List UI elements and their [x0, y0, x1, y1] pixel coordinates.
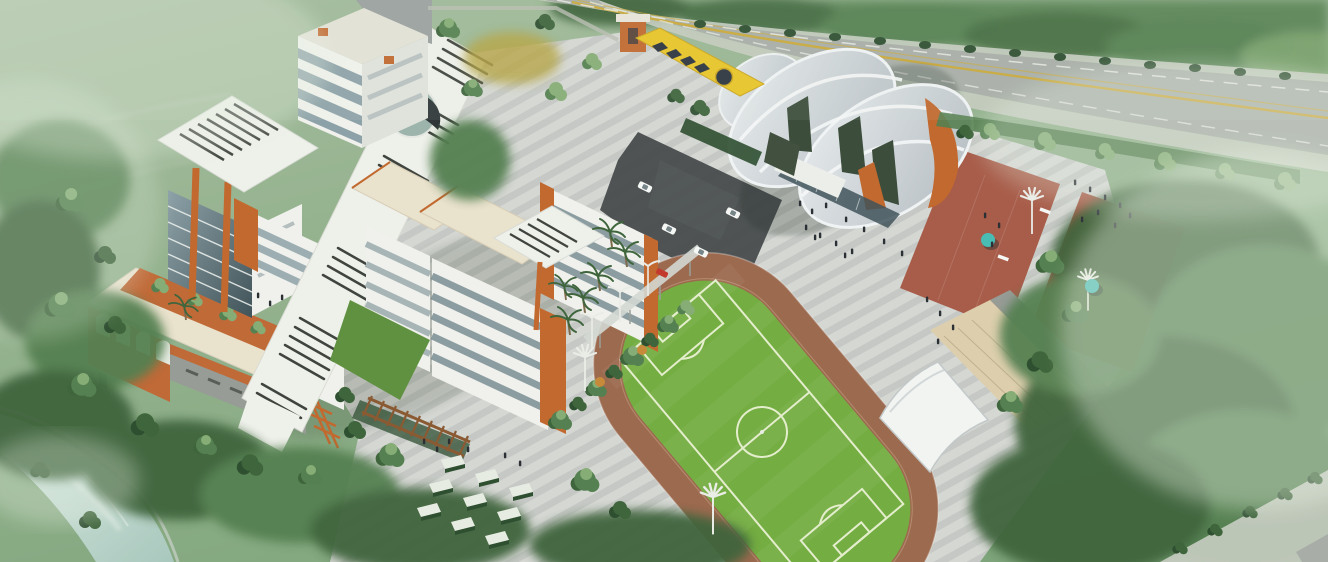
gate-emblem — [716, 69, 733, 86]
campus-scene — [0, 0, 1328, 562]
campus-aerial-rendering — [0, 0, 1328, 562]
orange-stair-core — [234, 198, 258, 272]
gate-tower-cap — [616, 14, 650, 22]
